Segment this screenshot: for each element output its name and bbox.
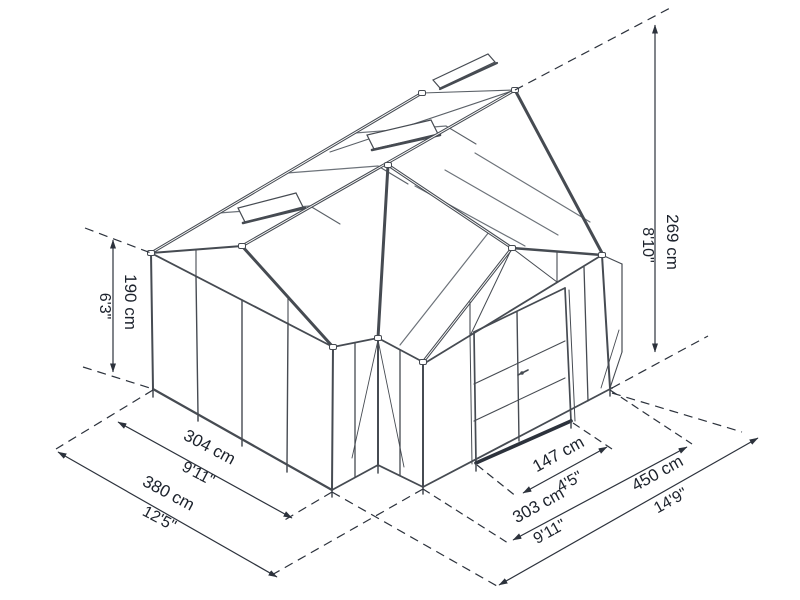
double-door — [470, 288, 575, 464]
dimension-label-metric: 190 cm — [121, 274, 140, 330]
roof-glazing-bars — [219, 126, 590, 345]
connector-cap — [148, 251, 155, 256]
connector-cap — [385, 163, 392, 168]
dimension-wall-height: 190 cm 6'3" — [83, 228, 153, 389]
profile-highlight — [388, 165, 512, 248]
dimension-front-total: 450 cm 14'9" — [332, 393, 758, 586]
dimension-label-imperial: 12'5" — [139, 503, 178, 535]
extension-line — [477, 465, 517, 497]
door-center-stile — [517, 312, 519, 441]
connector-cap — [375, 336, 382, 341]
profile-highlight — [151, 93, 422, 253]
connector-cap — [599, 253, 606, 258]
door-mid-rail — [474, 341, 565, 384]
extension-line — [270, 489, 423, 576]
corner-post — [151, 253, 153, 389]
extension-line — [612, 393, 742, 432]
front-door-wall — [423, 248, 622, 487]
wall-mullion — [584, 267, 588, 401]
corner-post — [332, 347, 333, 490]
connector-cap — [509, 246, 516, 251]
profile-highlight — [423, 248, 512, 362]
base-rail — [423, 388, 612, 487]
door-mid-rail — [474, 378, 565, 421]
dimension-label-imperial: 8'10" — [639, 227, 656, 262]
back-gable-top-edge — [422, 90, 515, 93]
connector-cap — [330, 345, 337, 350]
connector-cap — [419, 91, 426, 96]
glazing-bar — [400, 232, 489, 345]
wall-mullion — [196, 277, 198, 414]
gable-brace — [512, 248, 557, 282]
corner-post — [602, 255, 610, 388]
extension-line — [610, 390, 692, 444]
dimension-label-imperial: 9'11" — [179, 458, 217, 489]
connector-cap — [239, 244, 246, 249]
extension-line — [56, 390, 153, 449]
dimension-label-imperial: 14'9" — [651, 485, 690, 517]
far-slope-bar — [310, 206, 340, 224]
valley-beam — [378, 165, 388, 338]
extension-line — [83, 367, 153, 389]
extension-line — [515, 7, 672, 90]
door-handle — [518, 370, 528, 375]
door-jamb-left — [474, 332, 476, 463]
door-frame-left — [470, 334, 472, 464]
far-slope-bar — [446, 126, 476, 144]
glazing-bar — [287, 166, 378, 173]
glazing-bar — [475, 153, 590, 222]
far-roof-lines — [310, 90, 515, 224]
side-return-base — [610, 352, 622, 388]
door-head-rail — [474, 288, 565, 332]
glazing-bar — [445, 170, 558, 235]
back-gable-edge — [515, 90, 602, 253]
truss-wire — [352, 340, 378, 458]
roof-vents — [238, 54, 497, 223]
dimension-label-imperial: 9'11" — [531, 516, 569, 547]
eave-line — [425, 255, 602, 363]
greenhouse-drawing — [148, 54, 623, 497]
diagram-canvas: 190 cm 6'3" 269 cm 8'10" 304 cm 9'11" 38… — [0, 0, 800, 600]
greenhouse-dimension-diagram: 190 cm 6'3" 269 cm 8'10" 304 cm 9'11" 38… — [0, 0, 800, 600]
dimension-annotations: 190 cm 6'3" 269 cm 8'10" 304 cm 9'11" 38… — [56, 7, 758, 586]
extension-line — [332, 492, 497, 586]
roof-profile-highlights — [151, 90, 515, 362]
dimension-label-imperial: 6'3" — [96, 293, 113, 320]
connector-cap — [420, 360, 427, 365]
dimension-label-metric: 269 cm — [663, 214, 682, 270]
roof-vent — [367, 120, 438, 149]
extension-line — [423, 489, 508, 543]
wall-mullion — [287, 323, 288, 465]
dimension-ridge-height: 269 cm 8'10" — [515, 7, 708, 388]
roof-vent — [433, 54, 495, 88]
dimension-label-metric: 147 cm — [529, 432, 587, 476]
extension-line — [85, 228, 151, 253]
extension-line — [612, 336, 708, 388]
left-gable-wall — [151, 250, 333, 490]
